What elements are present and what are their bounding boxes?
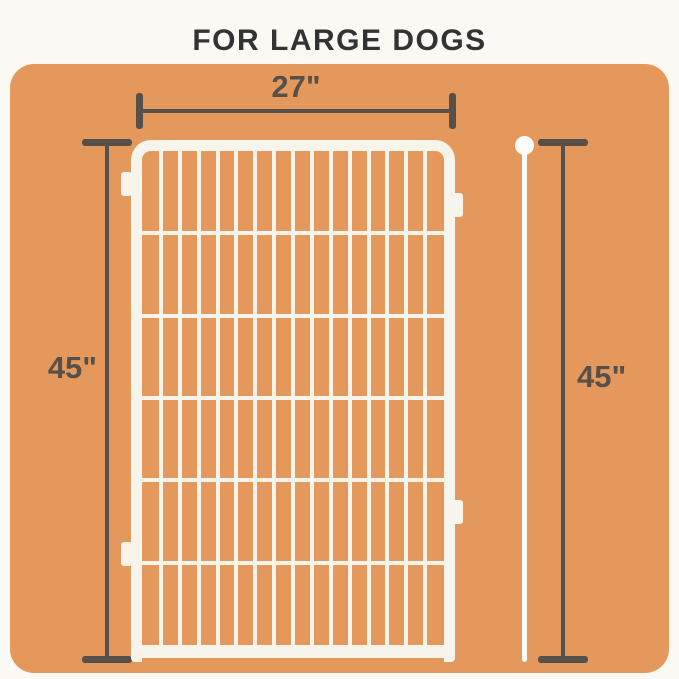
mesh-horizontal-wire [142, 478, 444, 482]
width-dimension-label: 27" [271, 69, 320, 105]
orange-background-board: 27" 45" 45" [10, 64, 669, 673]
mesh-horizontal-wire [142, 231, 444, 235]
hinge-tab-left-bottom [121, 542, 132, 566]
right-height-dimension-line: 45" [561, 140, 565, 662]
width-dimension-line: 27" [137, 109, 455, 113]
mesh-horizontal-wire [142, 314, 444, 318]
hinge-tab-right-top [452, 193, 463, 217]
left-height-dimension-line: 45" [105, 140, 109, 662]
pen-panel-illustration [131, 140, 455, 662]
panel-bottom-rail [140, 645, 446, 658]
connector-rod-illustration [522, 144, 527, 662]
right-height-dimension-label: 45" [577, 359, 626, 395]
panel-mesh [142, 151, 444, 645]
hinge-tab-left-top [121, 172, 132, 196]
mesh-horizontal-wire [142, 396, 444, 400]
page-title: FOR LARGE DOGS [0, 24, 679, 58]
mesh-horizontal-wire [142, 561, 444, 565]
connector-rod-ball-top [515, 136, 534, 155]
hinge-tab-right-bottom [452, 500, 463, 524]
left-height-dimension-label: 45" [48, 350, 97, 386]
